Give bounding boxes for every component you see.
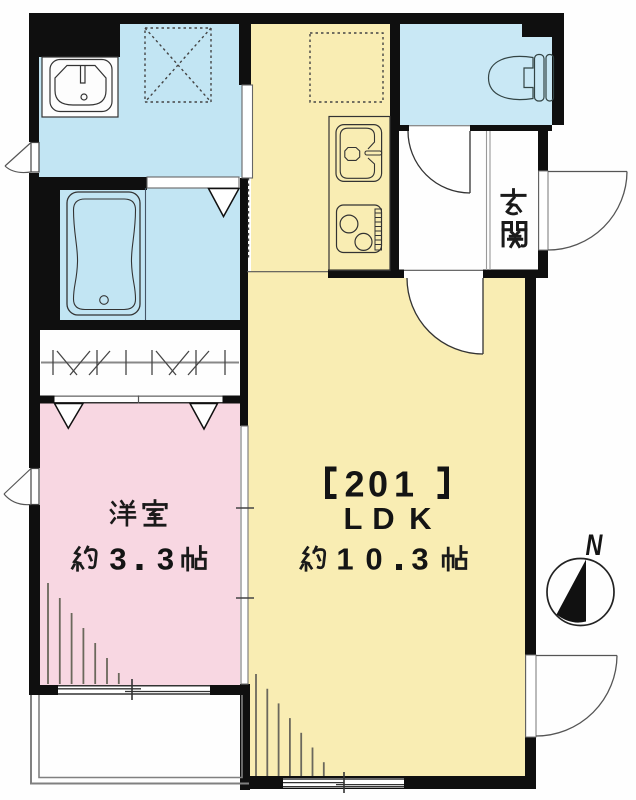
svg-text:3: 3 bbox=[411, 542, 428, 577]
svg-text:K: K bbox=[409, 501, 432, 536]
svg-text:0: 0 bbox=[368, 464, 388, 505]
svg-text:3: 3 bbox=[109, 542, 126, 577]
svg-text:2: 2 bbox=[344, 464, 364, 505]
svg-text:0: 0 bbox=[365, 542, 382, 577]
svg-text:1: 1 bbox=[336, 542, 353, 577]
svg-text:L: L bbox=[344, 501, 363, 536]
svg-text:1: 1 bbox=[394, 464, 414, 505]
svg-text:N: N bbox=[586, 528, 603, 561]
svg-text:D: D bbox=[372, 501, 394, 536]
svg-text:3: 3 bbox=[157, 542, 174, 577]
